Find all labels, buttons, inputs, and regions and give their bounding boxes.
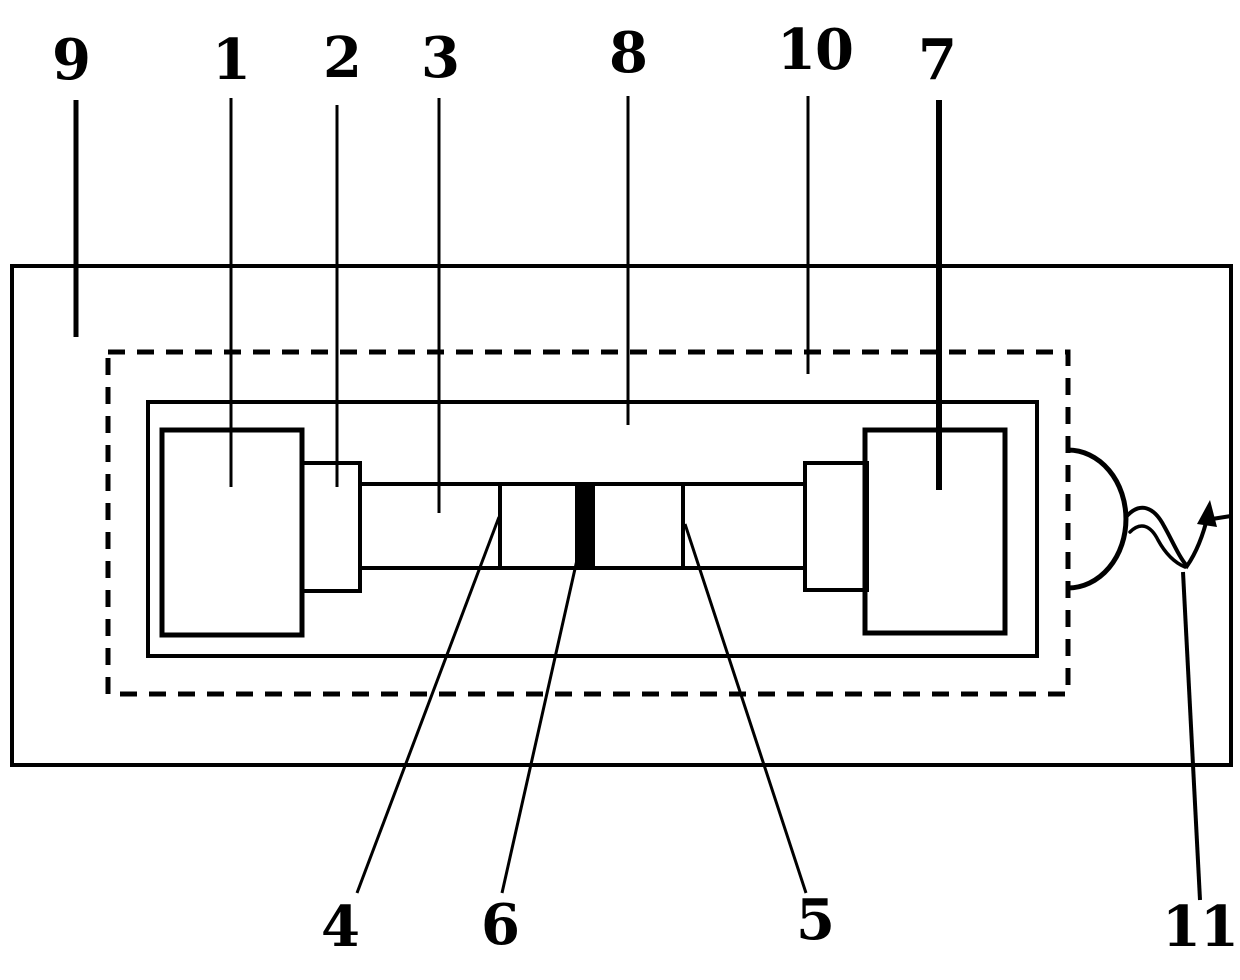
border-entry-tick — [1212, 516, 1231, 519]
callout-7: 7 — [918, 32, 956, 88]
outer-housing-rect — [12, 266, 1231, 765]
left-coupler-block — [302, 463, 360, 591]
right-end-block — [865, 430, 1005, 633]
callout-9: 9 — [52, 32, 90, 88]
fiber-exit-curve — [1126, 508, 1208, 566]
leader-line-11 — [1183, 572, 1200, 900]
callout-5: 5 — [796, 892, 834, 948]
callout-3: 3 — [421, 30, 459, 86]
callout-4: 4 — [321, 899, 359, 955]
leader-line-4 — [357, 517, 499, 893]
callout-1: 1 — [212, 32, 250, 88]
callout-11: 11 — [1162, 899, 1238, 955]
callout-2: 2 — [323, 30, 361, 86]
diagram-svg — [0, 0, 1240, 980]
leader-line-6 — [502, 551, 579, 893]
fiber-arrowhead — [1197, 500, 1217, 527]
figure-canvas: 9 1 2 3 8 10 7 4 6 5 11 — [0, 0, 1240, 980]
leader-line-5 — [685, 524, 806, 893]
callout-8: 8 — [609, 25, 647, 81]
fiber-loop-arc — [1068, 450, 1126, 588]
right-coupler-block — [805, 463, 867, 590]
callout-6: 6 — [481, 897, 519, 953]
callout-10: 10 — [777, 22, 853, 78]
